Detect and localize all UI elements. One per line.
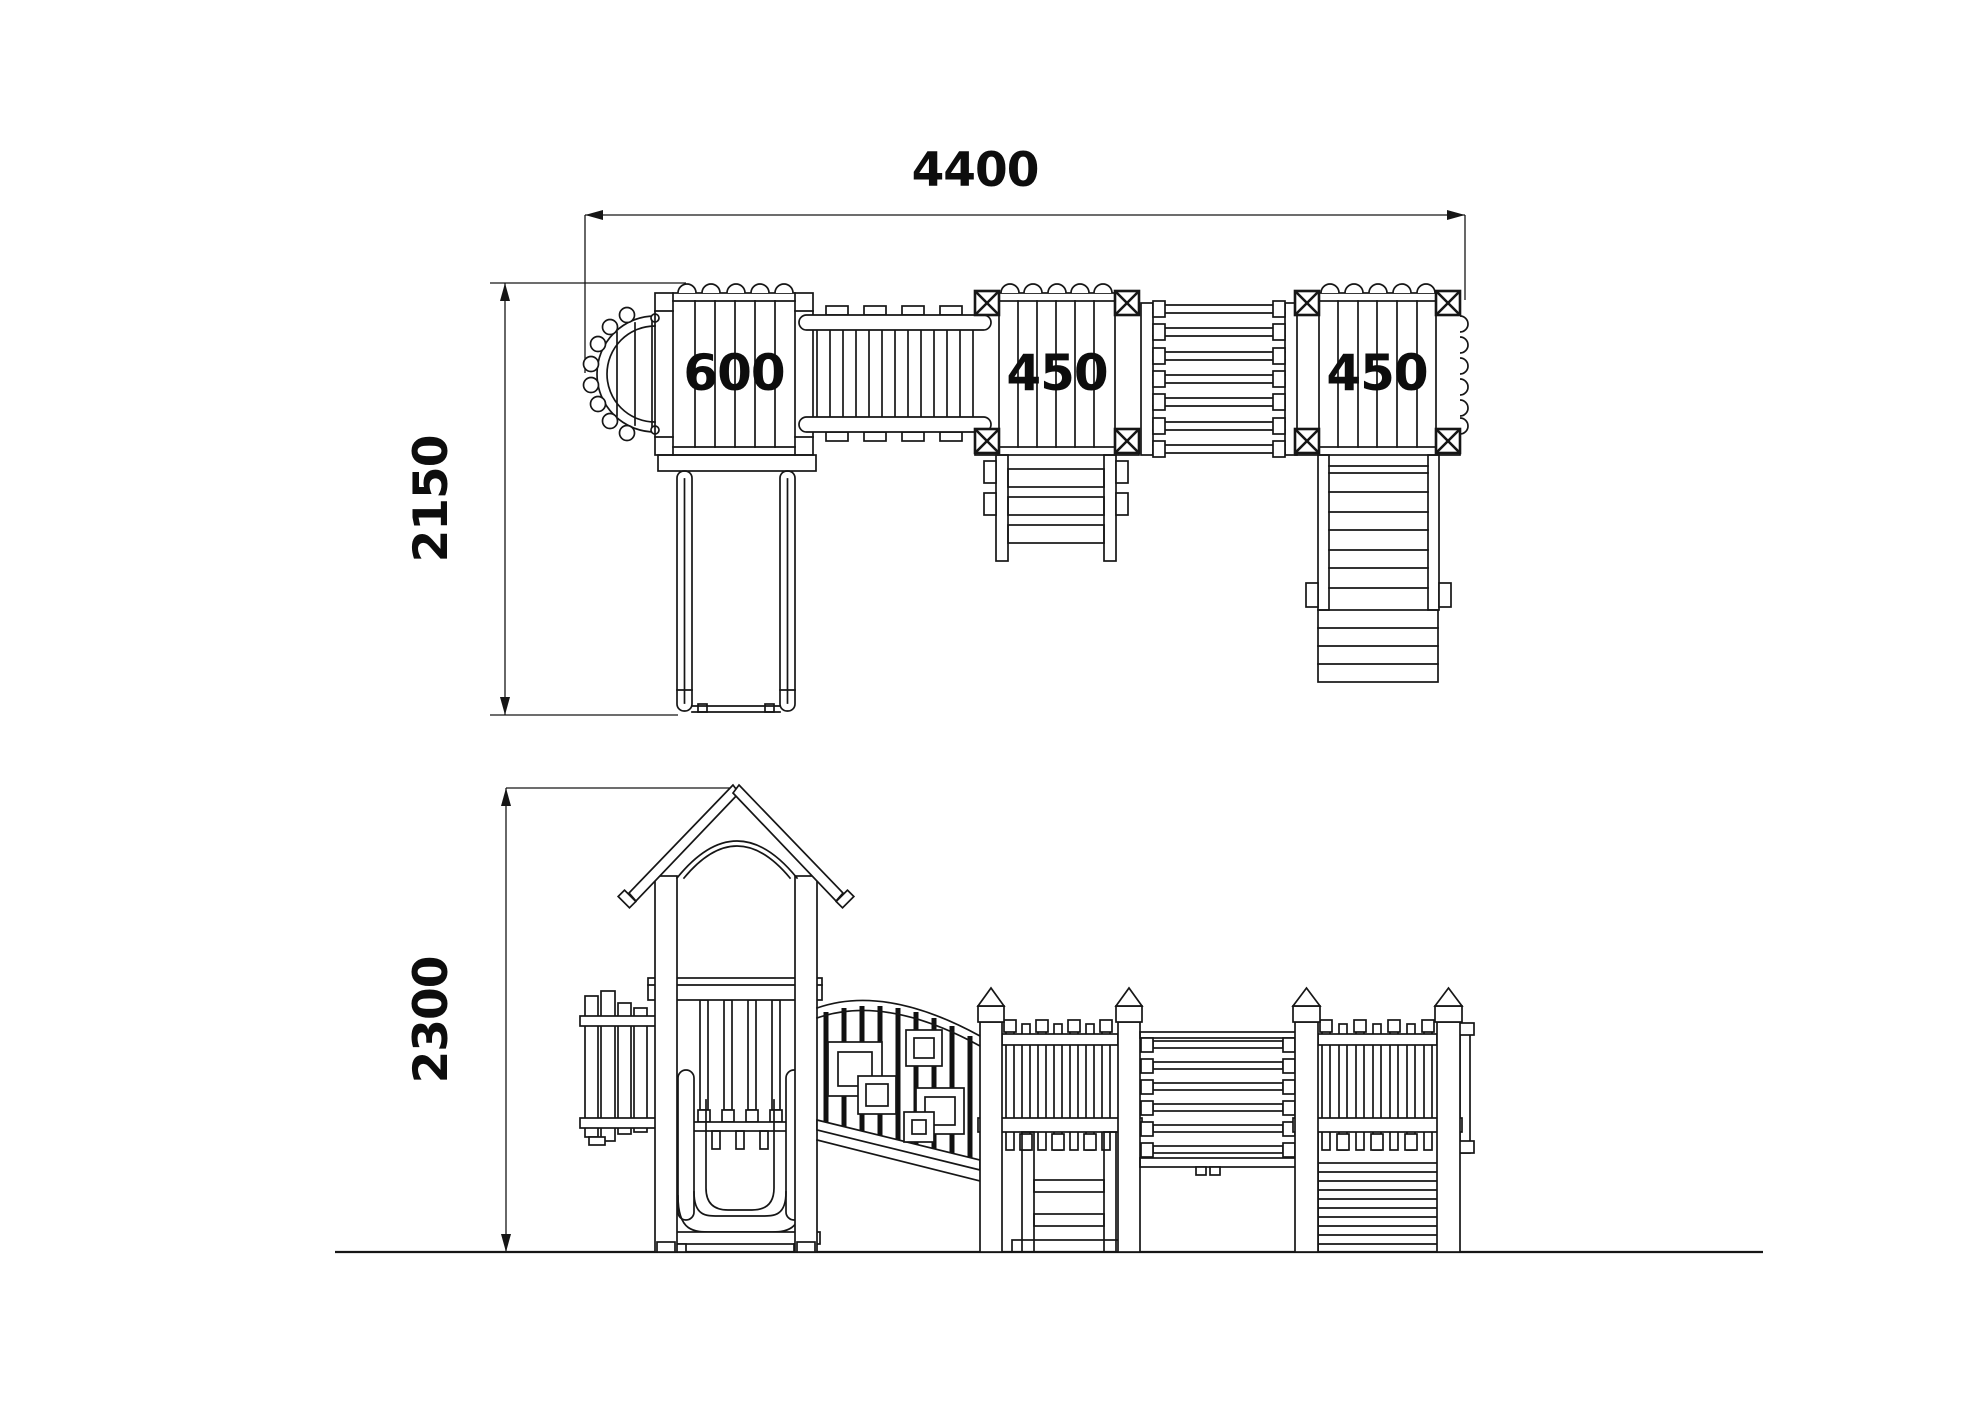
plan-platform-450-left: 450	[975, 284, 1139, 455]
plan-platform-450-right: 450	[1295, 284, 1468, 455]
platform-600-label: 600	[683, 344, 784, 402]
plan-ladder-right	[1306, 455, 1451, 682]
elev-castle-right	[1293, 988, 1474, 1252]
plan-monkey-bar-tabs	[1153, 301, 1285, 457]
elev-arch-panel	[817, 1000, 980, 1181]
plan-dimension-width: 4400	[585, 143, 1465, 373]
elev-arc-climber	[580, 991, 660, 1145]
plan-stairs-left	[984, 455, 1128, 561]
elevation-height-label: 2300	[404, 957, 459, 1084]
plan-depth-label: 2150	[404, 436, 459, 563]
plan-slide	[658, 455, 816, 712]
plan-dimension-depth: 2150	[404, 283, 686, 715]
elev-castle-left	[978, 988, 1142, 1252]
elev-tower-post-left	[655, 876, 677, 1252]
platform-450-left-label: 450	[1006, 344, 1107, 402]
plan-view: 4400 2150	[404, 143, 1468, 715]
elevation-view: 2300	[335, 785, 1763, 1252]
elev-tower-post-right	[795, 876, 817, 1252]
elev-monkey-bar-tabs	[1141, 1038, 1295, 1157]
plan-width-label: 4400	[912, 143, 1039, 198]
playground-technical-drawing: 4400 2150	[0, 0, 1987, 1405]
elev-tower-balusters	[688, 1000, 802, 1149]
plan-monkey-bar-rungs	[1153, 305, 1285, 453]
plan-platform-600: 600	[655, 284, 813, 455]
elev-side-fence-board	[1460, 1027, 1470, 1153]
plan-monkey-bars	[1141, 301, 1297, 457]
platform-450-right-label: 450	[1326, 344, 1427, 402]
plan-bridge	[799, 306, 991, 441]
elev-monkey-bars	[1140, 1032, 1297, 1175]
plan-arc-climber	[584, 308, 660, 441]
technical-drawing-page: 4400 2150	[0, 0, 1987, 1405]
plan-right-side-grips	[1460, 316, 1468, 434]
